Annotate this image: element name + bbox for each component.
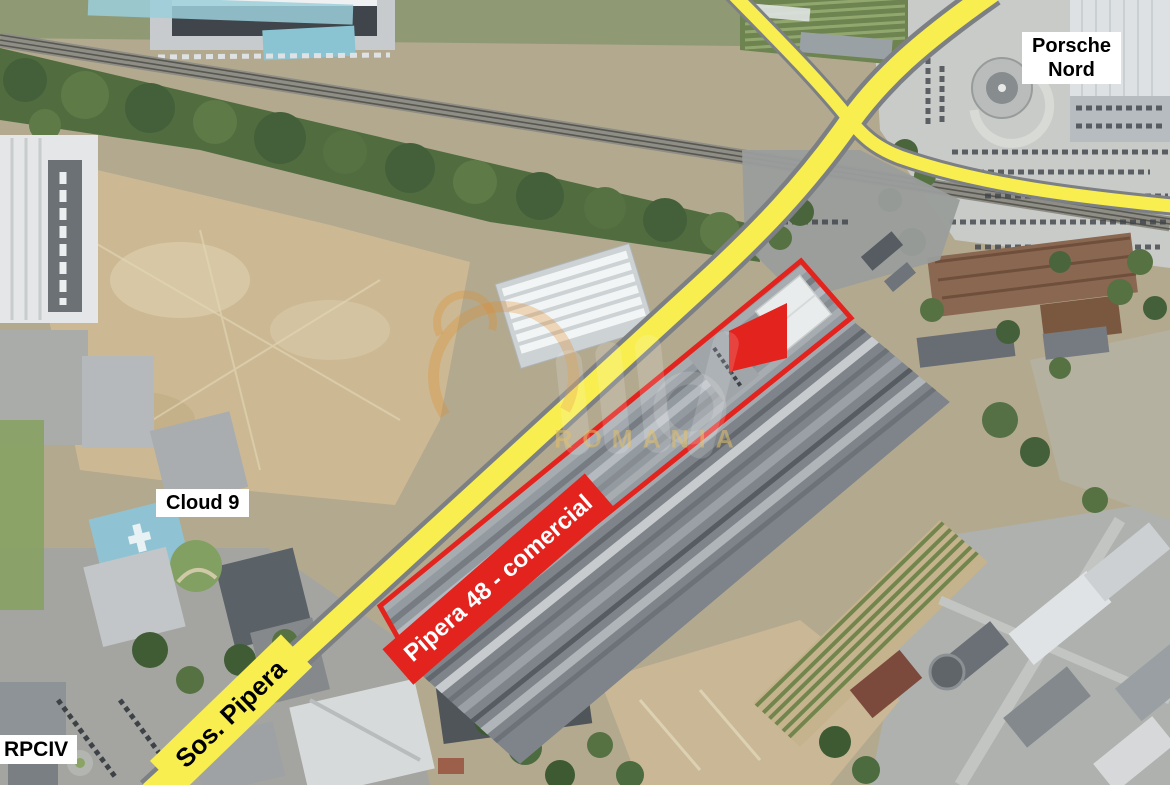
label-porsche-line1: Porsche <box>1022 34 1121 58</box>
label-cloud9: Cloud 9 <box>156 489 249 517</box>
label-porsche-line2: Nord <box>1022 58 1121 82</box>
satellite-imagery <box>0 0 1170 785</box>
satellite-map: Porsche Nord Cloud 9 RPCIV Sos. Pipera P… <box>0 0 1170 785</box>
watermark-text: ROMANIA <box>554 426 743 455</box>
label-porsche-nord: Porsche Nord <box>1022 32 1121 84</box>
label-rpciv: RPCIV <box>0 735 77 764</box>
